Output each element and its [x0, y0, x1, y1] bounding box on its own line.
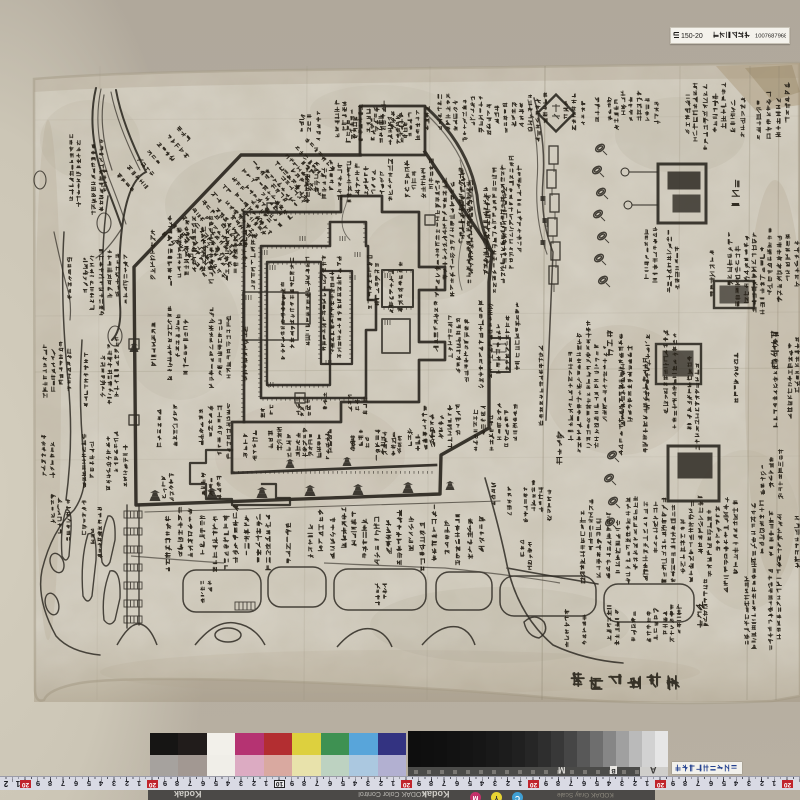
svg-text:10076879681: 10076879681	[755, 34, 786, 40]
svg-text:150-20: 150-20	[681, 33, 703, 40]
